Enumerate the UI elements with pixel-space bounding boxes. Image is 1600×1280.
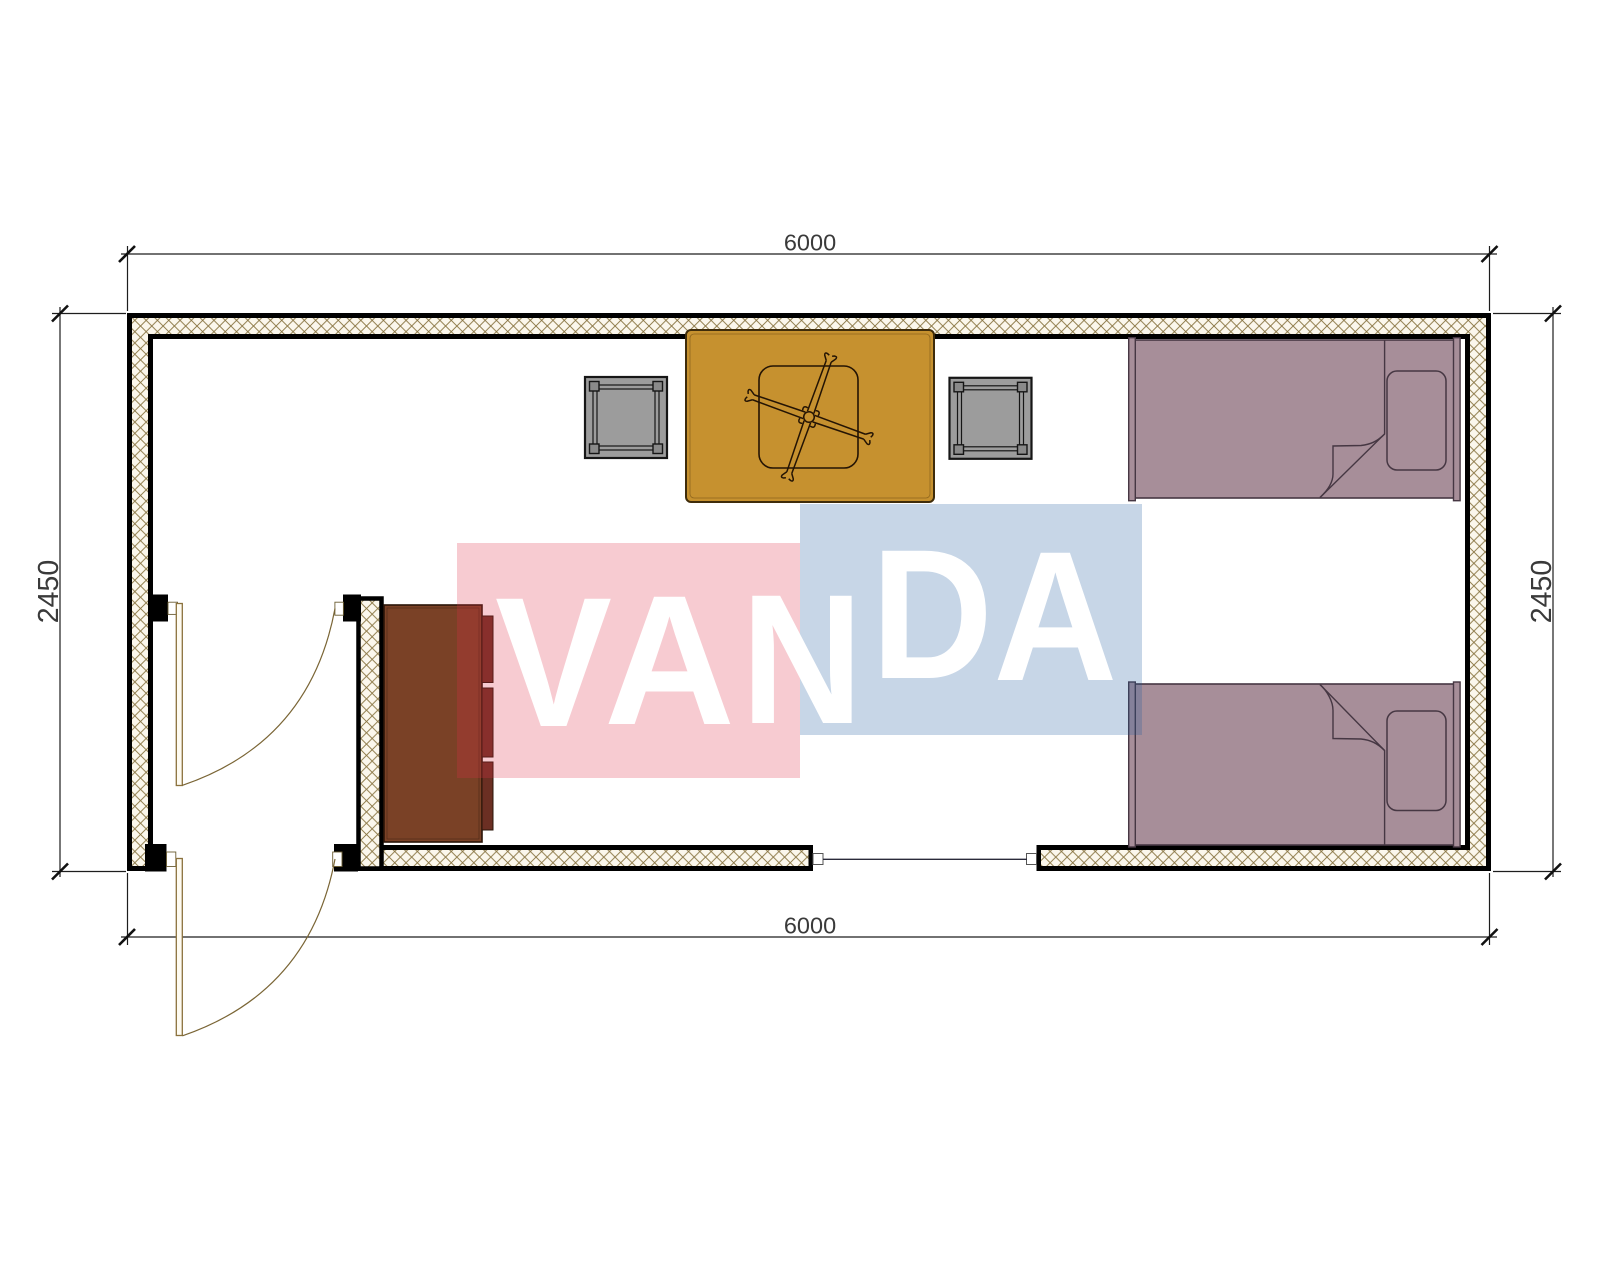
svg-text:A: A: [604, 558, 735, 764]
svg-text:D: D: [871, 512, 993, 718]
svg-text:V: V: [495, 560, 612, 766]
svg-text:6000: 6000: [784, 913, 836, 939]
svg-text:2450: 2450: [1526, 560, 1558, 623]
svg-text:6000: 6000: [784, 230, 836, 256]
svg-text:A: A: [993, 514, 1117, 720]
svg-text:2450: 2450: [33, 560, 65, 623]
svg-text:N: N: [741, 557, 863, 763]
